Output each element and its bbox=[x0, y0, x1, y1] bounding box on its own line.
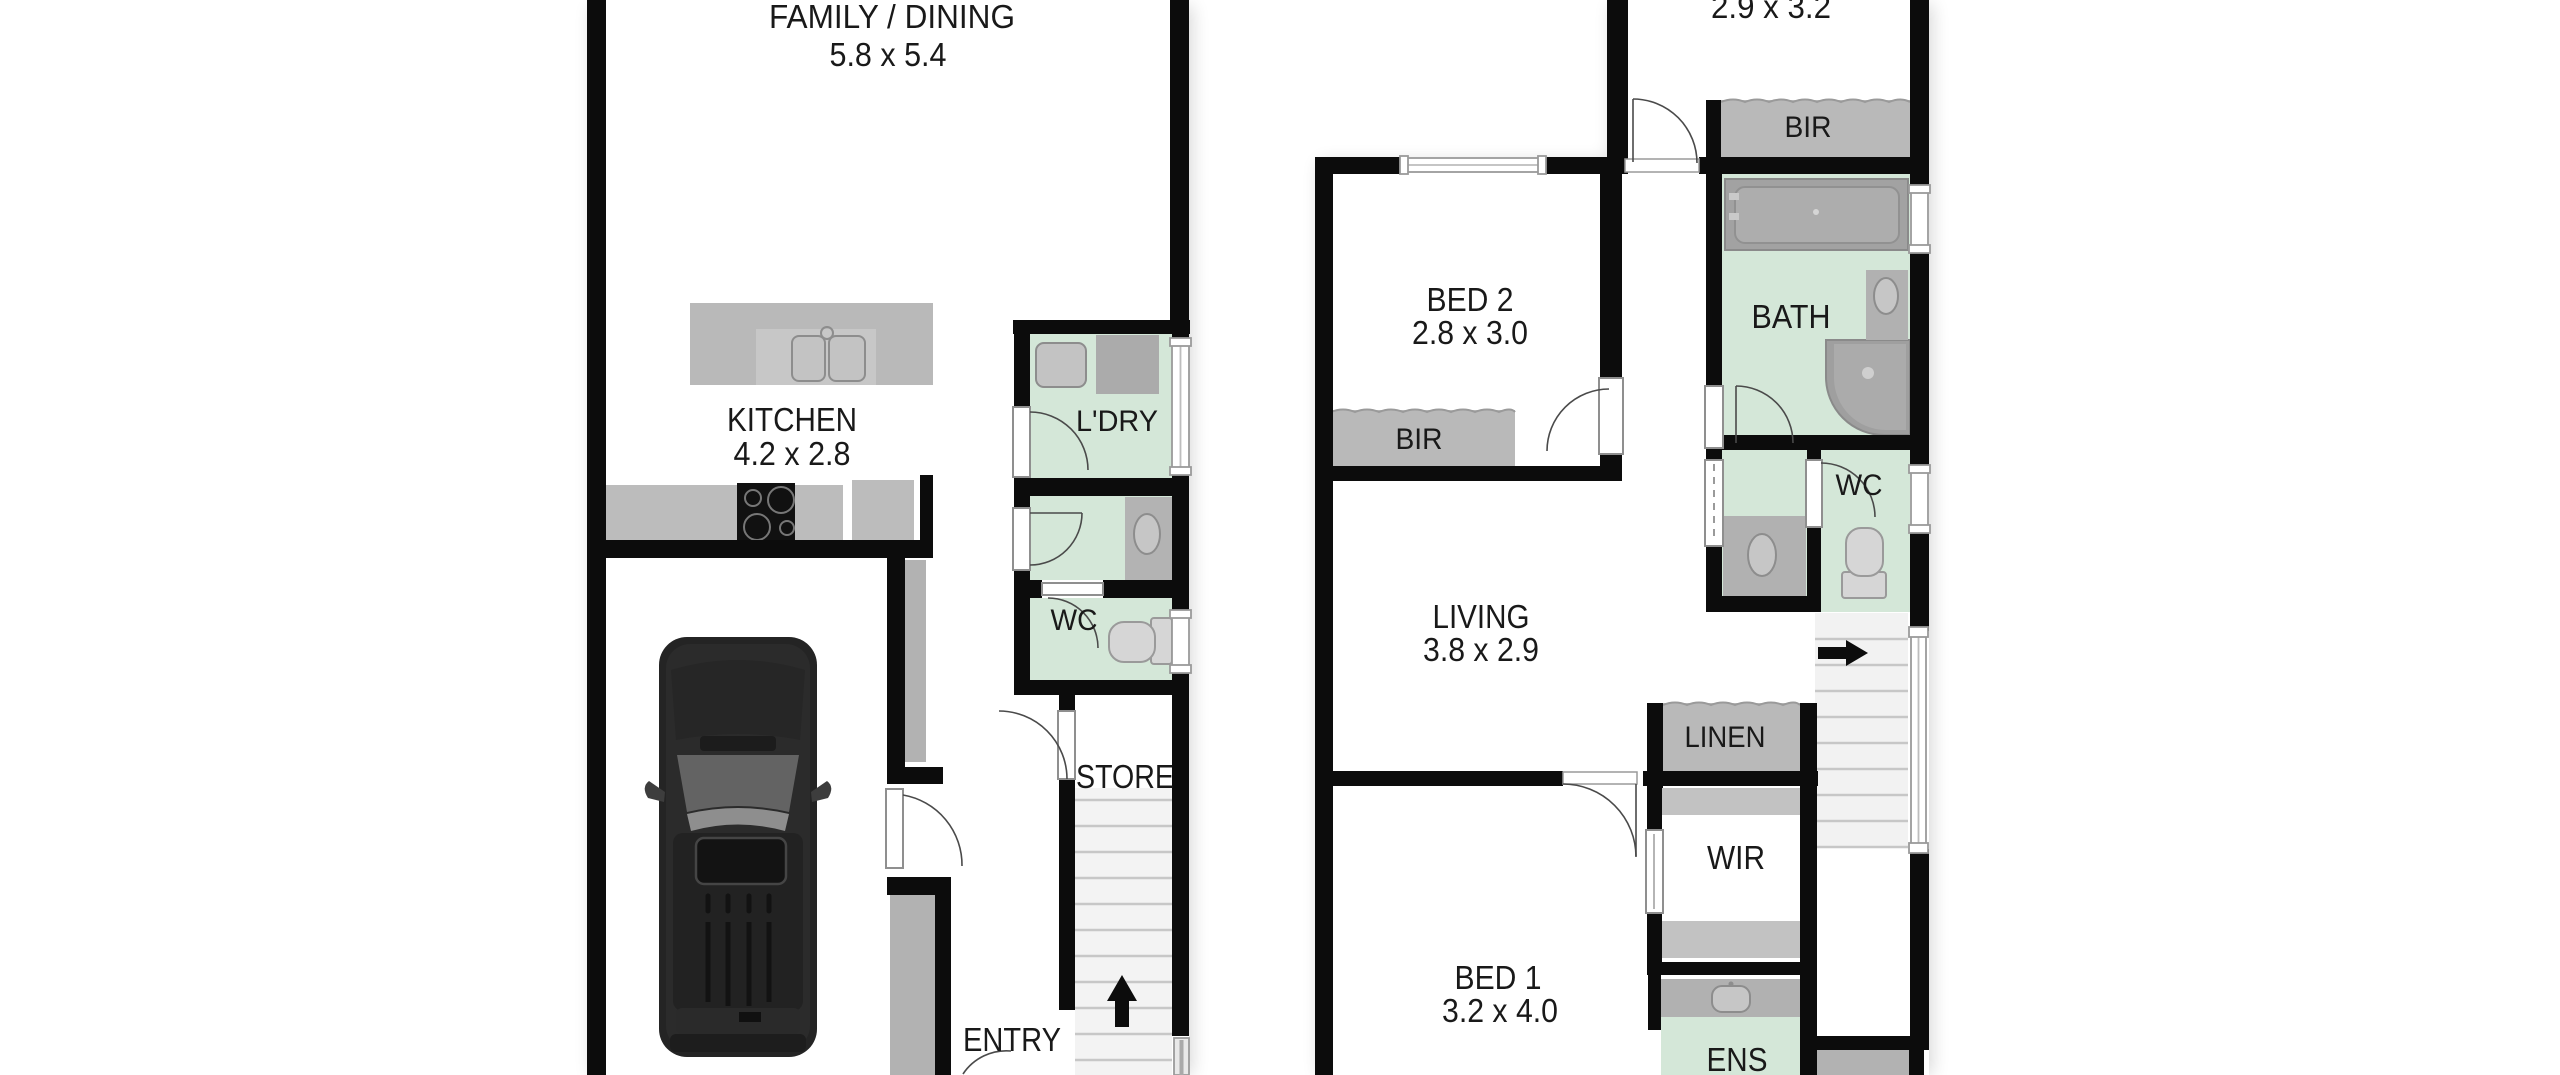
svg-text:BED 1: BED 1 bbox=[1455, 959, 1542, 996]
svg-text:LINEN: LINEN bbox=[1685, 721, 1766, 754]
svg-text:WC: WC bbox=[1836, 469, 1883, 502]
svg-text:ENS: ENS bbox=[1707, 1041, 1768, 1075]
svg-text:L'DRY: L'DRY bbox=[1076, 405, 1158, 438]
svg-text:STORE: STORE bbox=[1076, 758, 1174, 795]
svg-text:KITCHEN: KITCHEN bbox=[727, 401, 857, 438]
svg-text:WC: WC bbox=[1051, 604, 1098, 637]
svg-text:BATH: BATH bbox=[1752, 298, 1831, 335]
svg-text:BED 2: BED 2 bbox=[1427, 281, 1514, 318]
svg-text:2.9 x 3.2: 2.9 x 3.2 bbox=[1711, 0, 1831, 25]
svg-text:5.8 x 5.4: 5.8 x 5.4 bbox=[830, 36, 947, 73]
svg-text:ENTRY: ENTRY bbox=[963, 1021, 1061, 1058]
svg-text:4.2 x 2.8: 4.2 x 2.8 bbox=[734, 435, 851, 472]
svg-text:3.2 x 4.0: 3.2 x 4.0 bbox=[1442, 992, 1558, 1029]
svg-text:BIR: BIR bbox=[1785, 111, 1832, 144]
svg-text:BIR: BIR bbox=[1396, 423, 1443, 456]
svg-text:FAMILY / DINING: FAMILY / DINING bbox=[769, 0, 1015, 35]
svg-text:WIR: WIR bbox=[1707, 839, 1765, 876]
svg-text:2.8 x 3.0: 2.8 x 3.0 bbox=[1412, 314, 1528, 351]
svg-text:3.8 x 2.9: 3.8 x 2.9 bbox=[1423, 631, 1539, 668]
svg-text:LIVING: LIVING bbox=[1433, 598, 1530, 635]
